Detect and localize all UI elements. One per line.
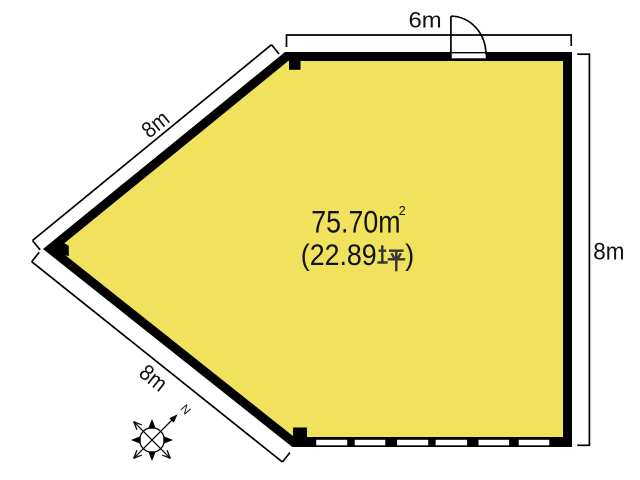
svg-text:2: 2: [399, 204, 406, 218]
svg-text:8m: 8m: [134, 359, 172, 396]
svg-text:8m: 8m: [593, 238, 624, 265]
svg-text:8m: 8m: [137, 106, 175, 143]
svg-text:75.70m: 75.70m: [311, 205, 400, 239]
svg-text:N: N: [178, 402, 194, 418]
svg-text:): ): [405, 239, 414, 273]
svg-text:6m: 6m: [408, 7, 441, 32]
svg-text:(22.89: (22.89: [301, 239, 377, 273]
